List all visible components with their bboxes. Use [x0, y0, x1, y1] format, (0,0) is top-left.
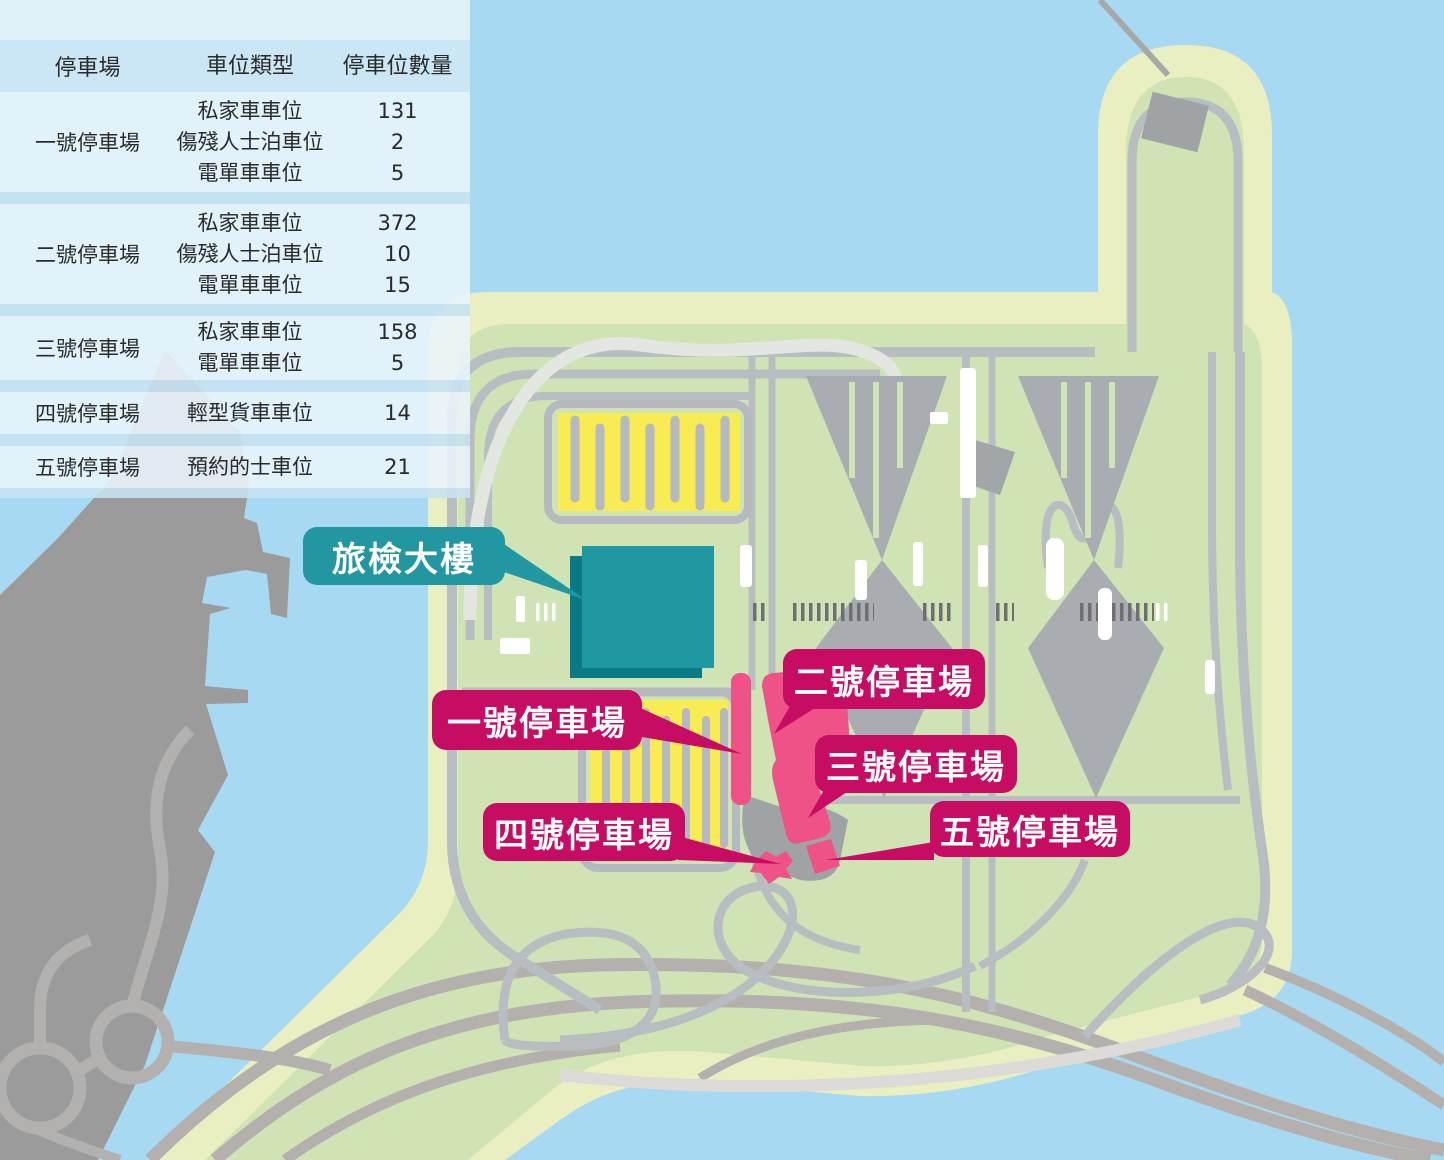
parking-table: 停車場 車位類型 停車位數量 一號停車場 私家車車位 傷殘人士泊車位 電單車車位…	[0, 0, 470, 498]
space-type: 電單車車位	[175, 270, 325, 301]
table-header: 停車場 車位類型 停車位數量	[0, 40, 470, 92]
col-header-type: 車位類型	[175, 51, 325, 82]
col-header-count: 停車位數量	[325, 51, 470, 82]
col-header-lot: 停車場	[0, 50, 175, 82]
lot-name: 三號停車場	[0, 333, 175, 363]
map-label-lot3: 三號停車場	[815, 735, 1017, 793]
space-type: 傷殘人士泊車位	[175, 239, 325, 270]
port-map-infographic: 停車場 車位類型 停車位數量 一號停車場 私家車車位 傷殘人士泊車位 電單車車位…	[0, 0, 1444, 1160]
space-count: 15	[325, 270, 470, 301]
lot-name: 五號停車場	[0, 452, 175, 482]
space-type: 電單車車位	[175, 348, 325, 379]
map-label-lot4: 四號停車場	[483, 803, 685, 861]
lot-name: 四號停車場	[0, 398, 175, 428]
table-row: 一號停車場 私家車車位 傷殘人士泊車位 電單車車位 131 2 5	[0, 92, 470, 192]
space-count: 5	[325, 158, 470, 189]
space-count: 5	[325, 348, 470, 379]
map-label-lot2: 二號停車場	[783, 649, 985, 709]
space-type: 預約的士車位	[175, 452, 325, 483]
map-label-lot5: 五號停車場	[930, 801, 1130, 857]
space-type: 私家車車位	[175, 208, 325, 239]
row-separator	[0, 380, 470, 392]
space-count: 158	[325, 317, 470, 348]
passenger-clearance-building	[570, 546, 714, 678]
space-count: 131	[325, 96, 470, 127]
space-type: 私家車車位	[175, 317, 325, 348]
space-count: 14	[325, 398, 470, 429]
row-separator	[0, 434, 470, 446]
space-type: 輕型貨車車位	[175, 398, 325, 429]
space-count: 21	[325, 452, 470, 483]
table-row: 五號停車場 預約的士車位 21	[0, 446, 470, 488]
space-type: 傷殘人士泊車位	[175, 127, 325, 158]
map-label-lot1: 一號停車場	[432, 690, 642, 750]
parking-area-pink-1	[731, 673, 751, 805]
table-top-spacer	[0, 0, 470, 40]
space-type: 私家車車位	[175, 96, 325, 127]
space-count: 10	[325, 239, 470, 270]
space-type: 電單車車位	[175, 158, 325, 189]
lot-name: 一號停車場	[0, 127, 175, 157]
lot-name: 二號停車場	[0, 239, 175, 269]
space-count: 2	[325, 127, 470, 158]
row-separator	[0, 304, 470, 316]
table-row: 四號停車場 輕型貨車車位 14	[0, 392, 470, 434]
table-bottom-edge	[0, 488, 470, 498]
map-label-building: 旅檢大樓	[303, 527, 505, 585]
table-row: 二號停車場 私家車車位 傷殘人士泊車位 電單車車位 372 10 15	[0, 204, 470, 304]
row-separator	[0, 192, 470, 204]
table-row: 三號停車場 私家車車位 電單車車位 158 5	[0, 316, 470, 380]
space-count: 372	[325, 208, 470, 239]
parking-area-yellow-1	[548, 404, 748, 520]
